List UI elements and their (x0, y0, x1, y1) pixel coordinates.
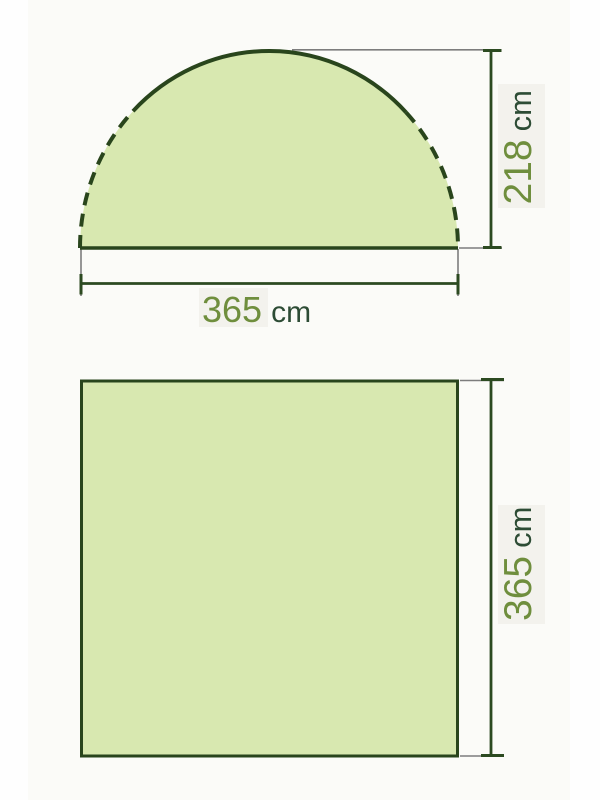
svg-text:365cm: 365cm (497, 507, 540, 621)
svg-text:365cm: 365cm (202, 289, 311, 330)
svg-text:218cm: 218cm (497, 90, 540, 204)
